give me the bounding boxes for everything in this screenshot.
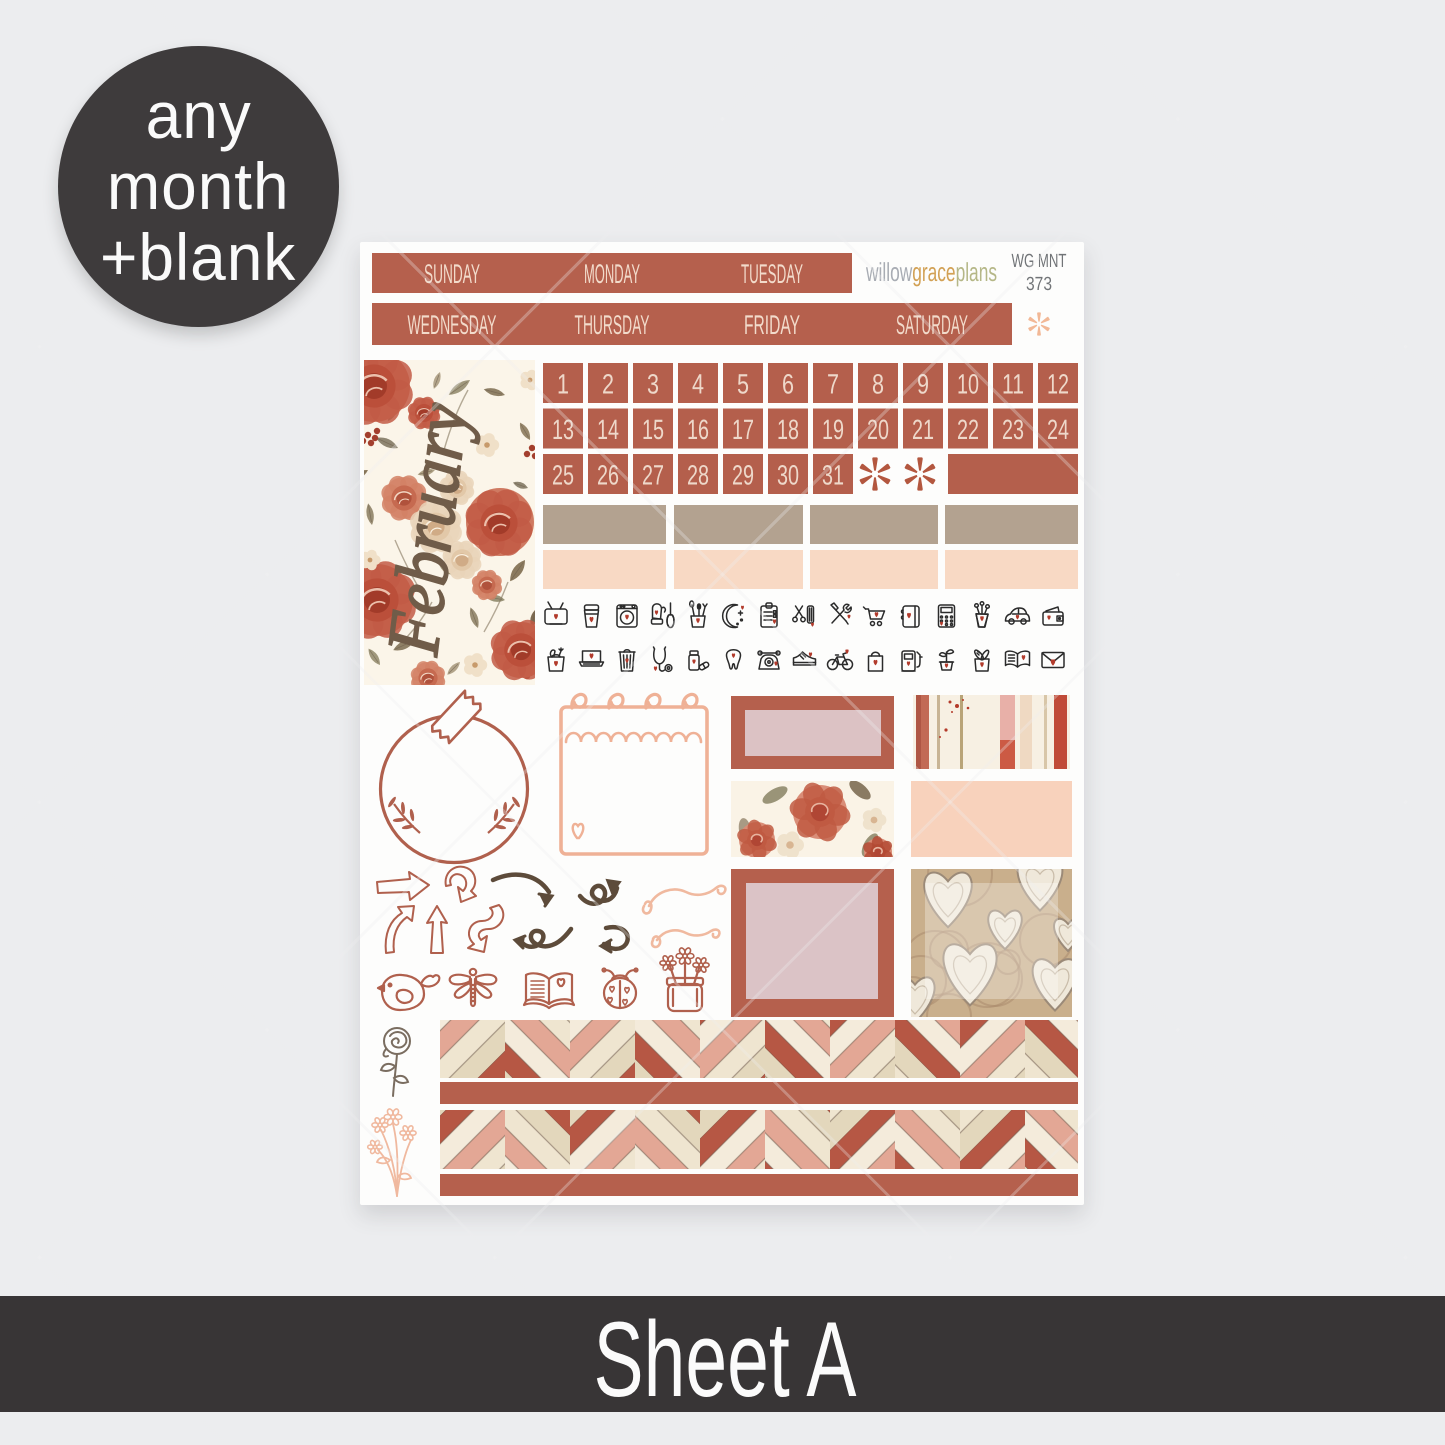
svg-text:5: 5 [737, 369, 749, 400]
svg-text:WEDNESDAY: WEDNESDAY [408, 310, 497, 340]
svg-text:24: 24 [1047, 414, 1069, 445]
svg-text:2: 2 [602, 369, 614, 400]
svg-text:Sheet A: Sheet A [594, 1299, 857, 1412]
svg-text:18: 18 [777, 414, 799, 445]
svg-text:9: 9 [917, 369, 929, 400]
svg-text:17: 17 [732, 414, 754, 445]
svg-text:16: 16 [687, 414, 709, 445]
svg-text:willowgraceplans: willowgraceplans [865, 257, 997, 287]
svg-text:SATURDAY: SATURDAY [896, 310, 968, 340]
svg-text:21: 21 [912, 414, 934, 445]
svg-text:THURSDAY: THURSDAY [575, 310, 650, 340]
svg-text:3: 3 [647, 369, 659, 400]
svg-text:8: 8 [872, 369, 884, 400]
svg-text:22: 22 [957, 414, 979, 445]
svg-text:29: 29 [732, 460, 754, 491]
svg-text:MONDAY: MONDAY [584, 259, 640, 289]
svg-text:23: 23 [1002, 414, 1024, 445]
svg-text:FRIDAY: FRIDAY [744, 310, 800, 340]
svg-text:26: 26 [597, 460, 619, 491]
svg-text:7: 7 [827, 369, 839, 400]
svg-text:30: 30 [777, 460, 799, 491]
svg-text:15: 15 [642, 414, 664, 445]
svg-text:19: 19 [822, 414, 844, 445]
svg-text:4: 4 [692, 369, 704, 400]
svg-text:1: 1 [557, 369, 569, 400]
svg-text:25: 25 [552, 460, 574, 491]
svg-text:11: 11 [1002, 369, 1024, 400]
svg-text:28: 28 [687, 460, 709, 491]
svg-text:13: 13 [552, 414, 574, 445]
svg-text:20: 20 [867, 414, 889, 445]
svg-text:27: 27 [642, 460, 664, 491]
svg-text:SUNDAY: SUNDAY [424, 259, 480, 289]
svg-text:31: 31 [822, 460, 844, 491]
svg-text:14: 14 [597, 414, 619, 445]
svg-text:6: 6 [782, 369, 794, 400]
svg-text:10: 10 [957, 369, 979, 400]
svg-text:12: 12 [1047, 369, 1069, 400]
svg-text:WG MNT: WG MNT [1012, 251, 1067, 272]
svg-text:TUESDAY: TUESDAY [741, 259, 803, 289]
svg-text:373: 373 [1026, 274, 1052, 295]
